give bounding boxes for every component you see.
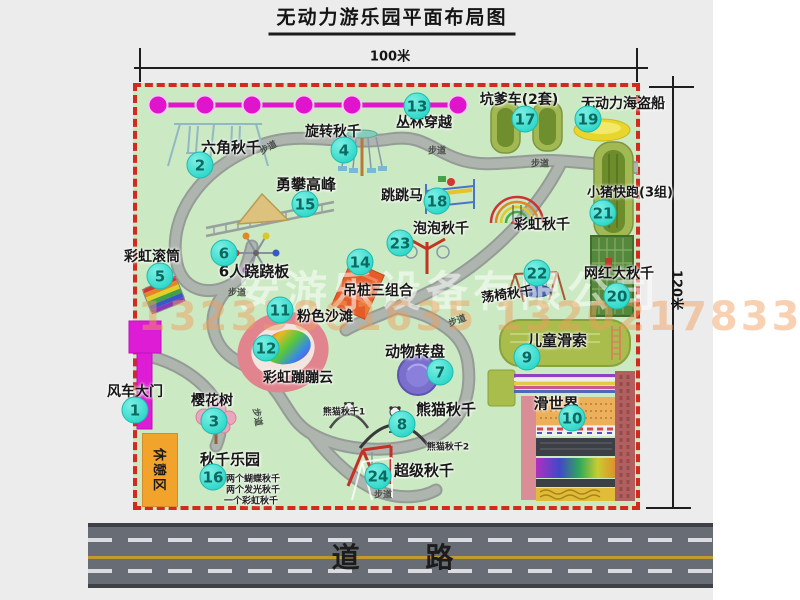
- label-rainbow-swing: 彩虹秋千: [514, 214, 570, 234]
- badge-3: 3: [201, 408, 228, 435]
- footpath-label: 步道: [428, 144, 446, 157]
- label-panda-swing-1: 熊猫秋千1: [323, 405, 365, 418]
- rest-area: 休憩区: [142, 433, 178, 507]
- label-net-swing: 网红大秋千: [584, 263, 654, 283]
- label-panda-swing: 熊猫秋千: [416, 399, 476, 420]
- badge-7: 7: [427, 359, 454, 386]
- road: 道 路: [88, 523, 713, 588]
- rest-area-label: 休憩区: [151, 447, 170, 492]
- badge-4: 4: [331, 137, 358, 164]
- badge-15: 15: [292, 191, 319, 218]
- label-panda-swing-2: 熊猫秋千2: [427, 440, 469, 453]
- badge-14: 14: [347, 249, 374, 276]
- label-rainbow-roller: 彩虹滚筒: [124, 246, 180, 266]
- label-super-swing: 超级秋千: [394, 460, 454, 481]
- label-jumping-horse: 跳跳马: [381, 185, 423, 205]
- park-layout-diagram: 无动力游乐园平面布局图 100米 120米: [0, 0, 800, 600]
- label-rotating-swing: 旋转秋千: [305, 121, 361, 141]
- badge-5: 5: [147, 263, 174, 290]
- badge-17: 17: [512, 106, 539, 133]
- right-margin: [713, 0, 800, 600]
- label-bubble-swing: 泡泡秋千: [413, 218, 469, 238]
- footpath-label: 步道: [228, 286, 246, 299]
- badge-19: 19: [575, 106, 602, 133]
- swing-park-note-3: 一个彩虹秋千: [224, 494, 278, 507]
- label-hanging-piles: 吊桩三组合: [343, 280, 413, 300]
- badge-22: 22: [524, 260, 551, 287]
- badge-23: 23: [387, 230, 414, 257]
- label-piggy-run: 小猪快跑(3组): [587, 182, 673, 201]
- badge-16: 16: [200, 464, 227, 491]
- road-label: 道 路: [332, 536, 470, 576]
- badge-20: 20: [604, 283, 631, 310]
- height-dimension-label: 120米: [669, 270, 688, 310]
- badge-18: 18: [424, 188, 451, 215]
- width-dimension-label: 100米: [370, 46, 410, 65]
- badge-24: 24: [365, 463, 392, 490]
- badge-10: 10: [559, 405, 586, 432]
- page-title: 无动力游乐园平面布局图: [268, 3, 515, 36]
- badge-6: 6: [211, 240, 238, 267]
- badge-13: 13: [404, 93, 431, 120]
- badge-1: 1: [122, 397, 149, 424]
- badge-11: 11: [267, 297, 294, 324]
- badge-21: 21: [590, 200, 617, 227]
- footpath-label: 步道: [531, 157, 549, 170]
- badge-9: 9: [514, 344, 541, 371]
- label-hexagon-swing: 六角秋千: [201, 137, 261, 158]
- label-rainbow-bounce-cloud: 彩虹蹦蹦云: [263, 367, 333, 387]
- badge-2: 2: [187, 152, 214, 179]
- label-pink-beach: 粉色沙滩: [297, 306, 353, 326]
- badge-12: 12: [253, 335, 280, 362]
- badge-8: 8: [389, 411, 416, 438]
